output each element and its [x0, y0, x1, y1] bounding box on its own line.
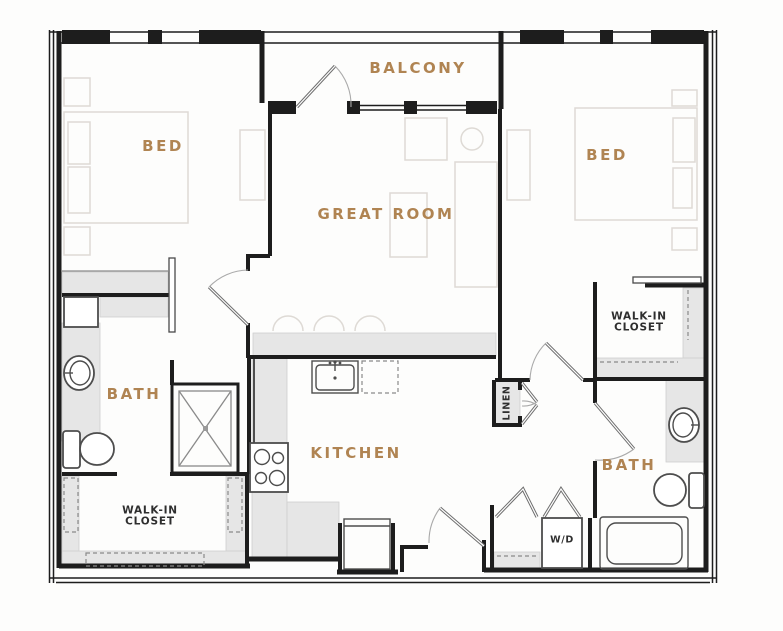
shower: [172, 384, 238, 473]
bath1-cabinet: [64, 297, 98, 327]
washer-dryer-bifold-doors: [496, 489, 580, 517]
bed2-pillow-2: [673, 168, 692, 208]
bed-right-label: BED: [586, 146, 628, 164]
window-mullion: [148, 30, 162, 44]
bed2-nightstand-2: [672, 228, 697, 250]
refrigerator: [344, 519, 390, 569]
bed2: [575, 108, 697, 220]
bed2-dresser: [507, 130, 530, 200]
bed1-pillow-2: [68, 167, 90, 213]
bedroom1-closet-shelf: [62, 272, 168, 294]
washer-dryer-label: W/D: [550, 535, 574, 546]
railing-post-2: [404, 101, 417, 114]
window-mullion-2: [600, 30, 613, 44]
balcony-wall-block: [268, 101, 296, 114]
walkin-closet-left-label: WALK-IN CLOSET: [122, 506, 178, 527]
bedroom2-door: [530, 343, 583, 380]
bath1-toilet: [80, 433, 114, 465]
bed1-pillow: [68, 122, 90, 164]
balcony-label: BALCONY: [369, 59, 466, 77]
kitchen-label: KITCHEN: [310, 444, 401, 462]
balcony-door: [297, 66, 351, 107]
railing-post-3: [466, 101, 497, 114]
kitchen-bar-counter: [253, 333, 496, 356]
bathtub: [600, 517, 688, 569]
bar-stool: [273, 316, 303, 331]
sofa: [455, 162, 497, 287]
bar-stool-2: [314, 316, 344, 331]
window-4: [651, 30, 704, 44]
dishwasher: [362, 361, 398, 393]
bed1-nightstand: [64, 78, 90, 106]
round-chair: [461, 128, 483, 150]
linen-label: LINEN: [502, 386, 513, 421]
bath-right-label: BATH: [602, 456, 657, 474]
window: [62, 30, 110, 44]
dining-table: [405, 118, 447, 160]
railing-post: [347, 101, 360, 114]
bed2-pillow: [673, 118, 695, 162]
walkin-closet-right-label: WALK-IN CLOSET: [611, 312, 667, 333]
closet2-shelf-right: [683, 288, 705, 359]
bed-left-label: BED: [142, 137, 184, 155]
linen-doors: [522, 383, 537, 424]
window-3: [520, 30, 564, 44]
bed1-dresser: [240, 130, 265, 200]
closet2-sliding-door: [633, 277, 701, 283]
stove: [250, 443, 288, 492]
bed2-nightstand: [672, 90, 697, 106]
bedroom1-door: [209, 270, 248, 325]
bath1-toilet-tank: [63, 431, 80, 468]
kitchen-counter-bottom: [287, 502, 339, 557]
windows: [50, 30, 717, 44]
closet2-shelf-bottom: [595, 358, 705, 378]
bar-stool-3: [355, 316, 385, 331]
great-room-label: GREAT ROOM: [318, 205, 455, 223]
bath2-door: [595, 403, 634, 460]
floor-plan: BALCONY BED BED GREAT ROOM BATH BATH KIT…: [0, 0, 783, 631]
entry-door: [429, 508, 484, 546]
bath1-sliding-door: [169, 258, 175, 332]
bath2-toilet: [654, 474, 686, 506]
bath-left-label: BATH: [107, 385, 162, 403]
bath1-counter: [100, 297, 168, 317]
closet1-shelf-right: [226, 476, 247, 553]
bath2-toilet-tank: [689, 473, 704, 508]
coffee-table: [390, 193, 427, 257]
bed1-nightstand-2: [64, 227, 90, 255]
entry-closet-shelf: [494, 552, 540, 568]
kitchen-sink: [312, 360, 358, 393]
window-2: [199, 30, 261, 44]
